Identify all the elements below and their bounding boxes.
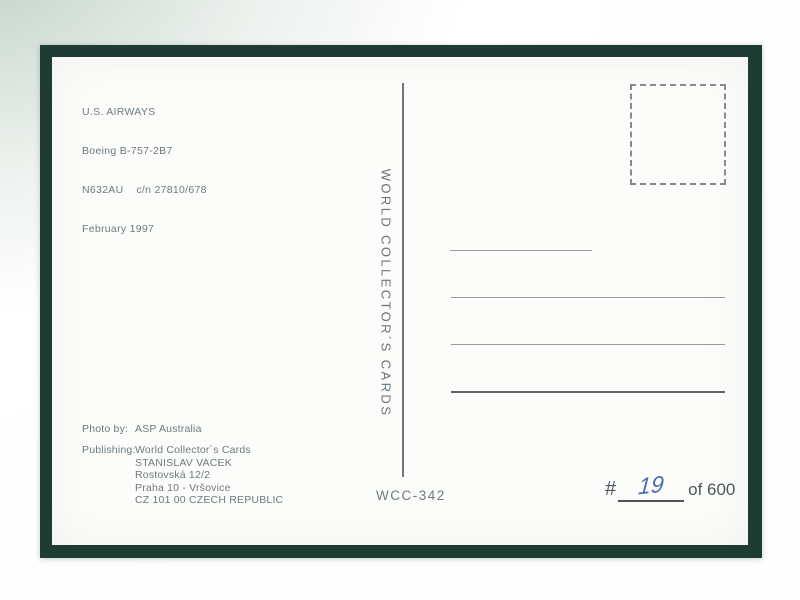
scanned-postcard-background: U.S. AIRWAYS Boeing B-757-2B7 N632AU c/n…	[0, 0, 800, 600]
photo-credit-row: Photo by: ASP Australia	[82, 423, 283, 435]
postcard-back: U.S. AIRWAYS Boeing B-757-2B7 N632AU c/n…	[52, 57, 748, 545]
photo-date: February 1997	[82, 223, 207, 236]
address-line-3	[451, 344, 725, 345]
card-number: WCC-342	[376, 488, 446, 503]
publisher-country: CZ 101 00 CZECH REPUBLIC	[135, 494, 283, 506]
address-line-4	[451, 391, 725, 393]
stamp-box	[630, 84, 726, 185]
hash-symbol: #	[605, 476, 616, 502]
divider-line	[402, 83, 404, 477]
aircraft-info-block: U.S. AIRWAYS Boeing B-757-2B7 N632AU c/n…	[82, 80, 207, 262]
airline-name: U.S. AIRWAYS	[82, 106, 207, 119]
aircraft-type: Boeing B-757-2B7	[82, 145, 207, 158]
registration-and-cn: N632AU c/n 27810/678	[82, 184, 207, 197]
photo-credit-value: ASP Australia	[135, 423, 202, 435]
publisher-person: STANISLAV VACEK	[135, 457, 283, 469]
limited-edition-numbering: # 19 of 600	[605, 474, 735, 502]
publisher-name: World Collector´s Cards	[135, 444, 283, 456]
publishing-row: Publishing: World Collector´s Cards STAN…	[82, 444, 283, 506]
credits-block: Photo by: ASP Australia Publishing: Worl…	[82, 423, 283, 506]
publishing-value: World Collector´s Cards STANISLAV VACEK …	[135, 444, 283, 506]
publisher-street: Rostovská 12/2	[135, 469, 283, 481]
publisher-city: Praha 10 - Vršovice	[135, 482, 283, 494]
address-line-1	[450, 250, 592, 251]
address-line-2	[451, 297, 725, 298]
edition-total: of 600	[688, 478, 735, 502]
number-underline: 19	[618, 474, 684, 502]
brand-vertical-text: WORLD COLLECTOR´S CARDS	[379, 169, 394, 418]
handwritten-edition-number: 19	[637, 470, 664, 500]
photo-credit-label: Photo by:	[82, 423, 135, 435]
postcard-frame: U.S. AIRWAYS Boeing B-757-2B7 N632AU c/n…	[40, 45, 762, 558]
publishing-label: Publishing:	[82, 444, 135, 506]
